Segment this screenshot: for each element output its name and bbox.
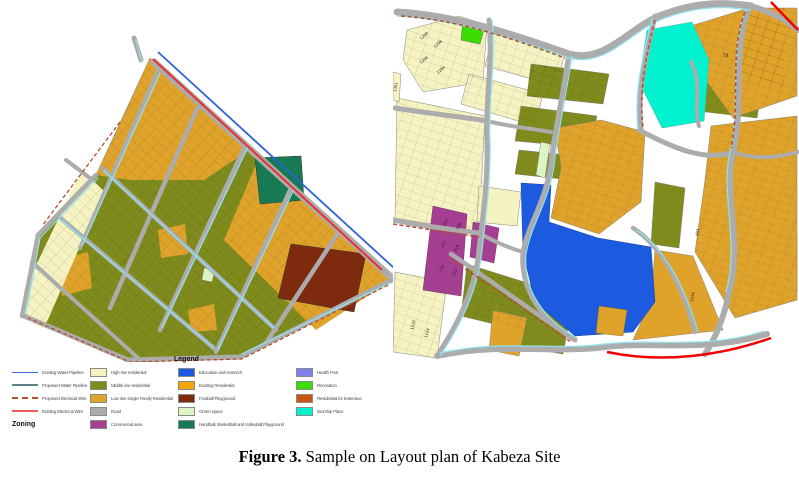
legend-label: Commercial area xyxy=(111,422,142,427)
legend-label: Health Post xyxy=(317,370,338,375)
legend-item-proposed-electrical-wire: Proposed Electrical Wire xyxy=(12,393,87,403)
legend-item-football: Football Playground xyxy=(178,393,284,403)
legend-item-residential-extension: Residential for Extension xyxy=(296,393,362,403)
health-post-swatch xyxy=(296,368,313,377)
commercial-swatch xyxy=(90,420,107,429)
legend-column-facilities: Education and research Existing Resident… xyxy=(178,367,284,432)
legend-label: High rise residential xyxy=(111,370,146,375)
legend-item-proposed-water-pipeline: Proposed Water Pipeline xyxy=(12,380,87,390)
legend-label: Recreation xyxy=(317,383,337,388)
legend-label: Residential for Extension xyxy=(317,396,362,401)
legend-column-residential: High rise residential Middle rise reside… xyxy=(90,367,173,432)
parcel-number: 74 xyxy=(723,53,729,59)
left-map xyxy=(8,28,393,362)
legend-item-high-rise: High rise residential xyxy=(90,367,173,377)
legend-label: Existing Water Pipeline xyxy=(42,370,84,375)
legend-item-worship: Worship Place xyxy=(296,406,362,416)
figure-caption-label: Figure 3. xyxy=(239,447,302,466)
legend-item-handball: Handball, Basketball and Volleyball Play… xyxy=(178,419,284,429)
legend: Legend Existing Water Pipeline Proposed … xyxy=(8,356,400,442)
legend-label: Handball, Basketball and Volleyball Play… xyxy=(199,422,284,427)
low-rise-swatch xyxy=(90,394,107,403)
legend-item-low-rise: Low rise Single Family Residential xyxy=(90,393,173,403)
legend-item-recreation: Recreation xyxy=(296,380,362,390)
legend-item-education: Education and research xyxy=(178,367,284,377)
legend-item-health-post: Health Post xyxy=(296,367,362,377)
legend-label: Road xyxy=(111,409,121,414)
worship-swatch xyxy=(296,407,313,416)
legend-label: Existing Residential xyxy=(199,383,234,388)
legend-label: Proposed Electrical Wire xyxy=(42,396,86,401)
legend-column-lines: Existing Water Pipeline Proposed Water P… xyxy=(12,367,87,432)
legend-item-existing-residential: Existing Residential xyxy=(178,380,284,390)
left-parcels-layer xyxy=(22,58,392,362)
figure-caption-text: Sample on Layout plan of Kabeza Site xyxy=(302,447,561,466)
residential-extension-swatch xyxy=(296,394,313,403)
legend-label: Existing Electrical Wire xyxy=(42,409,83,414)
existing-electrical-wire-symbol xyxy=(12,410,38,412)
legend-label: Green space xyxy=(199,409,223,414)
legend-label: Low rise Single Family Residential xyxy=(111,396,173,401)
legend-item-existing-electrical-wire: Existing Electrical Wire xyxy=(12,406,87,416)
legend-label: Worship Place xyxy=(317,409,343,414)
legend-item-existing-water-pipeline: Existing Water Pipeline xyxy=(12,367,87,377)
legend-label: Education and research xyxy=(199,370,242,375)
figure-caption: Figure 3. Sample on Layout plan of Kabez… xyxy=(0,447,799,467)
legend-item-commercial: Commercial area xyxy=(90,419,173,429)
proposed-electrical-wire-symbol xyxy=(12,397,38,399)
legend-item-middle-rise: Middle rise residential xyxy=(90,380,173,390)
road-swatch xyxy=(90,407,107,416)
existing-water-pipeline-symbol xyxy=(12,372,38,373)
legend-label: Football Playground xyxy=(199,396,235,401)
green-space-swatch xyxy=(178,407,195,416)
middle-rise-swatch xyxy=(90,381,107,390)
education-swatch xyxy=(178,368,195,377)
proposed-water-pipeline-symbol xyxy=(12,384,38,386)
legend-label: Middle rise residential xyxy=(111,383,150,388)
right-map: 227 228 217 218 214 213 74 1299 1298 129… xyxy=(393,0,799,365)
existing-residential-inset xyxy=(596,306,627,336)
recreation-swatch xyxy=(296,381,313,390)
legend-title: Legend xyxy=(174,356,199,363)
legend-column-services: Health Post Recreation Residential for E… xyxy=(296,367,362,419)
football-swatch xyxy=(178,394,195,403)
existing-residential-swatch xyxy=(178,381,195,390)
legend-label: Proposed Water Pipeline xyxy=(42,383,87,388)
zoning-heading: Zoning xyxy=(12,419,87,429)
legend-item-road: Road xyxy=(90,406,173,416)
figure-page: 227 228 217 218 214 213 74 1299 1298 129… xyxy=(0,0,799,485)
middle-rise-block xyxy=(651,182,685,248)
high-rise-swatch xyxy=(90,368,107,377)
legend-item-green-space: Green space xyxy=(178,406,284,416)
handball-swatch xyxy=(178,420,195,429)
